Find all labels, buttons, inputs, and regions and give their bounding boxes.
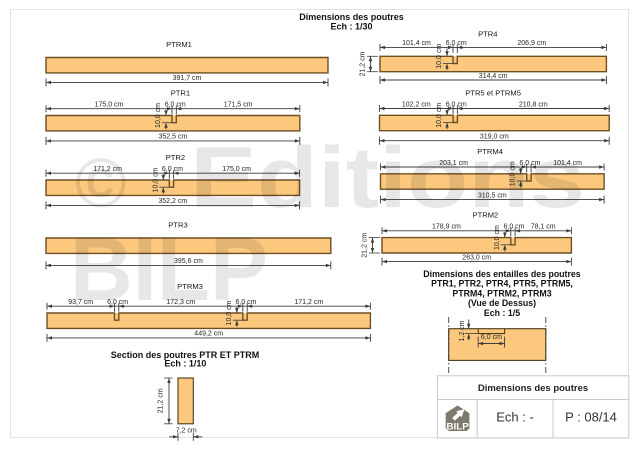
svg-text:210,8 cm: 210,8 cm — [519, 101, 548, 108]
svg-text:6,0 cm: 6,0 cm — [162, 166, 183, 173]
svg-text:102,2 cm: 102,2 cm — [402, 101, 431, 108]
svg-text:Ech : -: Ech : - — [496, 410, 534, 425]
svg-text:BILP: BILP — [446, 422, 469, 432]
svg-text:171,5 cm: 171,5 cm — [224, 102, 253, 109]
svg-text:6,0 cm: 6,0 cm — [165, 102, 186, 109]
svg-text:6,0 cm: 6,0 cm — [481, 334, 502, 341]
svg-text:263,0 cm: 263,0 cm — [462, 254, 491, 261]
svg-text:206,9 cm: 206,9 cm — [517, 40, 546, 47]
svg-text:PTRM1: PTRM1 — [166, 40, 192, 49]
svg-text:BILP: BILP — [70, 220, 268, 320]
svg-text:PTR1, PTR2, PTR4, PTR5, PTRM5,: PTR1, PTR2, PTR4, PTR5, PTRM5, — [431, 279, 573, 289]
svg-text:10,0 cm: 10,0 cm — [494, 225, 501, 250]
svg-text:10,0 cm: 10,0 cm — [152, 167, 159, 192]
svg-text:Dimensions des entailles des p: Dimensions des entailles des poutres — [423, 269, 581, 279]
svg-text:PTR1: PTR1 — [171, 89, 190, 98]
svg-text:10,0 cm: 10,0 cm — [155, 103, 162, 128]
svg-text:PTR2: PTR2 — [166, 153, 185, 162]
svg-text:(Vue de Dessus): (Vue de Dessus) — [468, 298, 536, 308]
svg-text:21,2 cm: 21,2 cm — [360, 51, 367, 76]
svg-text:Ech : 1/5: Ech : 1/5 — [484, 308, 520, 318]
svg-text:Ech : 1/10: Ech : 1/10 — [164, 359, 206, 369]
svg-text:Dimensions des poutres: Dimensions des poutres — [299, 12, 404, 22]
svg-text:101,4 cm: 101,4 cm — [402, 40, 431, 47]
svg-text:Dimensions des poutres: Dimensions des poutres — [478, 383, 588, 394]
svg-text:21,2 cm: 21,2 cm — [158, 388, 165, 413]
svg-text:352,2 cm: 352,2 cm — [158, 198, 187, 205]
svg-text:PTR5 et PTRM5: PTR5 et PTRM5 — [465, 88, 521, 97]
svg-text:391,7 cm: 391,7 cm — [173, 75, 202, 82]
svg-text:P : 08/14: P : 08/14 — [565, 410, 617, 425]
svg-text:352,5 cm: 352,5 cm — [159, 134, 188, 141]
svg-text:PTRM4, PTRM2, PTRM3: PTRM4, PTRM2, PTRM3 — [452, 288, 551, 298]
svg-text:Editions: Editions — [190, 130, 585, 226]
svg-text:175,0 cm: 175,0 cm — [95, 102, 124, 109]
svg-text:21,2 cm: 21,2 cm — [362, 233, 369, 258]
svg-text:©: © — [75, 144, 127, 222]
svg-text:Ech : 1/30: Ech : 1/30 — [330, 22, 372, 32]
svg-text:10,0 cm: 10,0 cm — [436, 103, 443, 128]
svg-text:314,4 cm: 314,4 cm — [479, 73, 508, 80]
svg-text:171,2 cm: 171,2 cm — [294, 299, 323, 306]
svg-text:PTR4: PTR4 — [478, 29, 497, 38]
svg-text:449,2 cm: 449,2 cm — [194, 331, 223, 338]
svg-text:6,0 cm: 6,0 cm — [446, 101, 467, 108]
svg-text:1,2 cm: 1,2 cm — [459, 320, 466, 341]
svg-text:10,0 cm: 10,0 cm — [436, 44, 443, 69]
svg-text:6,0 cm: 6,0 cm — [446, 40, 467, 47]
